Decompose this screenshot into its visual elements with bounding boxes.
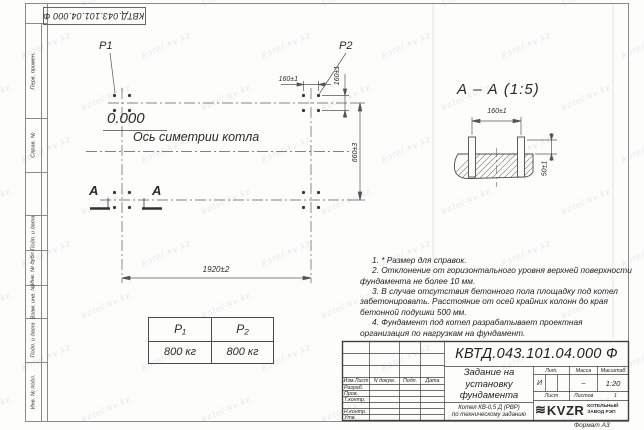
margin-cell-sprav-no: Справ. № bbox=[25, 118, 42, 172]
load-table-header-p2: P₂ bbox=[211, 318, 273, 341]
note-item: 3. В случае отсутствия бетонного пола пл… bbox=[360, 286, 632, 317]
tb-sheets-value: 1 bbox=[614, 393, 617, 399]
tb-sheets-label: Листов bbox=[574, 393, 593, 399]
elevation-mark: 0.000 bbox=[107, 110, 145, 127]
dim-1920-label: 1920±2 bbox=[192, 265, 240, 274]
tb-col-data: Дата bbox=[421, 378, 444, 384]
dim-160-right-label: 160±1 bbox=[331, 61, 345, 89]
note-item: 2. Отклонение от горизонтального уровня … bbox=[360, 265, 632, 286]
margin-cell-perv-primen: Перв. примен. bbox=[25, 23, 42, 118]
title-block-subtitle-1: Котел КВ-0,5 Д (РВР) bbox=[447, 404, 531, 411]
manufacturer-logo: ≋ KVZR КОТЕЛЬНЫЙ ЗАВОД РЭП bbox=[535, 401, 627, 419]
technical-notes: 1. * Размер для справок. 2. Отклонение о… bbox=[360, 255, 632, 338]
tb-sheet-label: Лист bbox=[534, 392, 569, 400]
section-letter-a-right: А bbox=[152, 183, 161, 198]
format-label: Формат А3 bbox=[574, 422, 610, 429]
drawing-sheet: kotel-kv.kzkotel-kv.kzkotel-kv.kzkotel-k… bbox=[0, 0, 644, 430]
tb-row-tkontr: Т.контр. bbox=[344, 397, 365, 403]
margin-cell-vzam-inv: Взам. инв. № bbox=[25, 285, 42, 318]
dim-660-label: 660±3 bbox=[349, 134, 363, 170]
load-table-value-p2: 800 кг bbox=[211, 341, 273, 364]
tb-mass-value: – bbox=[570, 376, 597, 390]
logo-brand-text: KVZR bbox=[547, 403, 584, 418]
tb-lit-header: Лит. bbox=[534, 367, 569, 374]
load-table-value-p1: 800 кг bbox=[149, 341, 211, 364]
margin-cell-podp-data-1: Подп. и дата bbox=[25, 215, 42, 250]
tb-lit-value: И bbox=[534, 376, 545, 390]
dim-160-top-label: 160±1 bbox=[272, 76, 298, 83]
section-cut-marks bbox=[90, 198, 162, 209]
section-dim-50-label: 50±1 bbox=[539, 156, 551, 180]
plan-dimensions bbox=[122, 74, 365, 280]
section-letter-a-left: А bbox=[89, 183, 98, 198]
tb-scale-header: Масштаб bbox=[598, 367, 628, 374]
leader-lines bbox=[110, 53, 346, 94]
tb-col-n-dokum: N докум. bbox=[370, 378, 399, 384]
title-block-document-title: Задание на установку фундамента bbox=[449, 368, 529, 401]
margin-cell-podp-data-2: Подп. и дата bbox=[25, 318, 42, 362]
title-block-designation: КВТД.043.101.04.000 Ф bbox=[445, 344, 628, 364]
tb-col-izm-list: Изм.Лист bbox=[343, 378, 369, 384]
note-item: 4. Фундамент под котел разрабатывает про… bbox=[360, 317, 632, 338]
anchor-stud bbox=[469, 137, 476, 177]
logo-waves-icon: ≋ bbox=[535, 402, 546, 418]
load-point-p2-label: P2 bbox=[339, 40, 352, 52]
tb-col-podp: Подп. bbox=[400, 378, 420, 384]
section-dim-160-label: 160±1 bbox=[477, 108, 517, 115]
note-item: 1. * Размер для справок. bbox=[360, 255, 632, 265]
tb-row-utv: Утв. bbox=[344, 415, 356, 421]
load-table-header-p1: P₁ bbox=[149, 318, 211, 341]
margin-cell-empty bbox=[25, 172, 42, 215]
margin-cell-inv-dubl: Инв. № дубл. bbox=[25, 250, 42, 285]
symmetry-axis-label: Ось симетрии котла bbox=[133, 130, 259, 144]
margin-cell-inv-podl: Инв. № подл. bbox=[25, 362, 42, 422]
tb-mass-header: Масса bbox=[570, 367, 597, 374]
anchor-stud bbox=[518, 137, 525, 177]
drawing-linework bbox=[0, 0, 644, 430]
title-block-subtitle-2: по техническому заданию bbox=[447, 411, 531, 418]
section-view-title: А – А (1:5) bbox=[457, 81, 540, 98]
top-designation-text: КВТД.043.101.04.000 Ф bbox=[43, 11, 144, 21]
tb-scale-value: 1:20 bbox=[598, 376, 628, 390]
load-point-p1-label: P1 bbox=[99, 40, 112, 52]
top-designation-stamp: КВТД.043.101.04.000 Ф bbox=[43, 7, 145, 24]
logo-subtitle: КОТЕЛЬНЫЙ ЗАВОД РЭП bbox=[587, 404, 623, 415]
load-table: P₁ P₂ 800 кг 800 кг bbox=[148, 317, 274, 364]
